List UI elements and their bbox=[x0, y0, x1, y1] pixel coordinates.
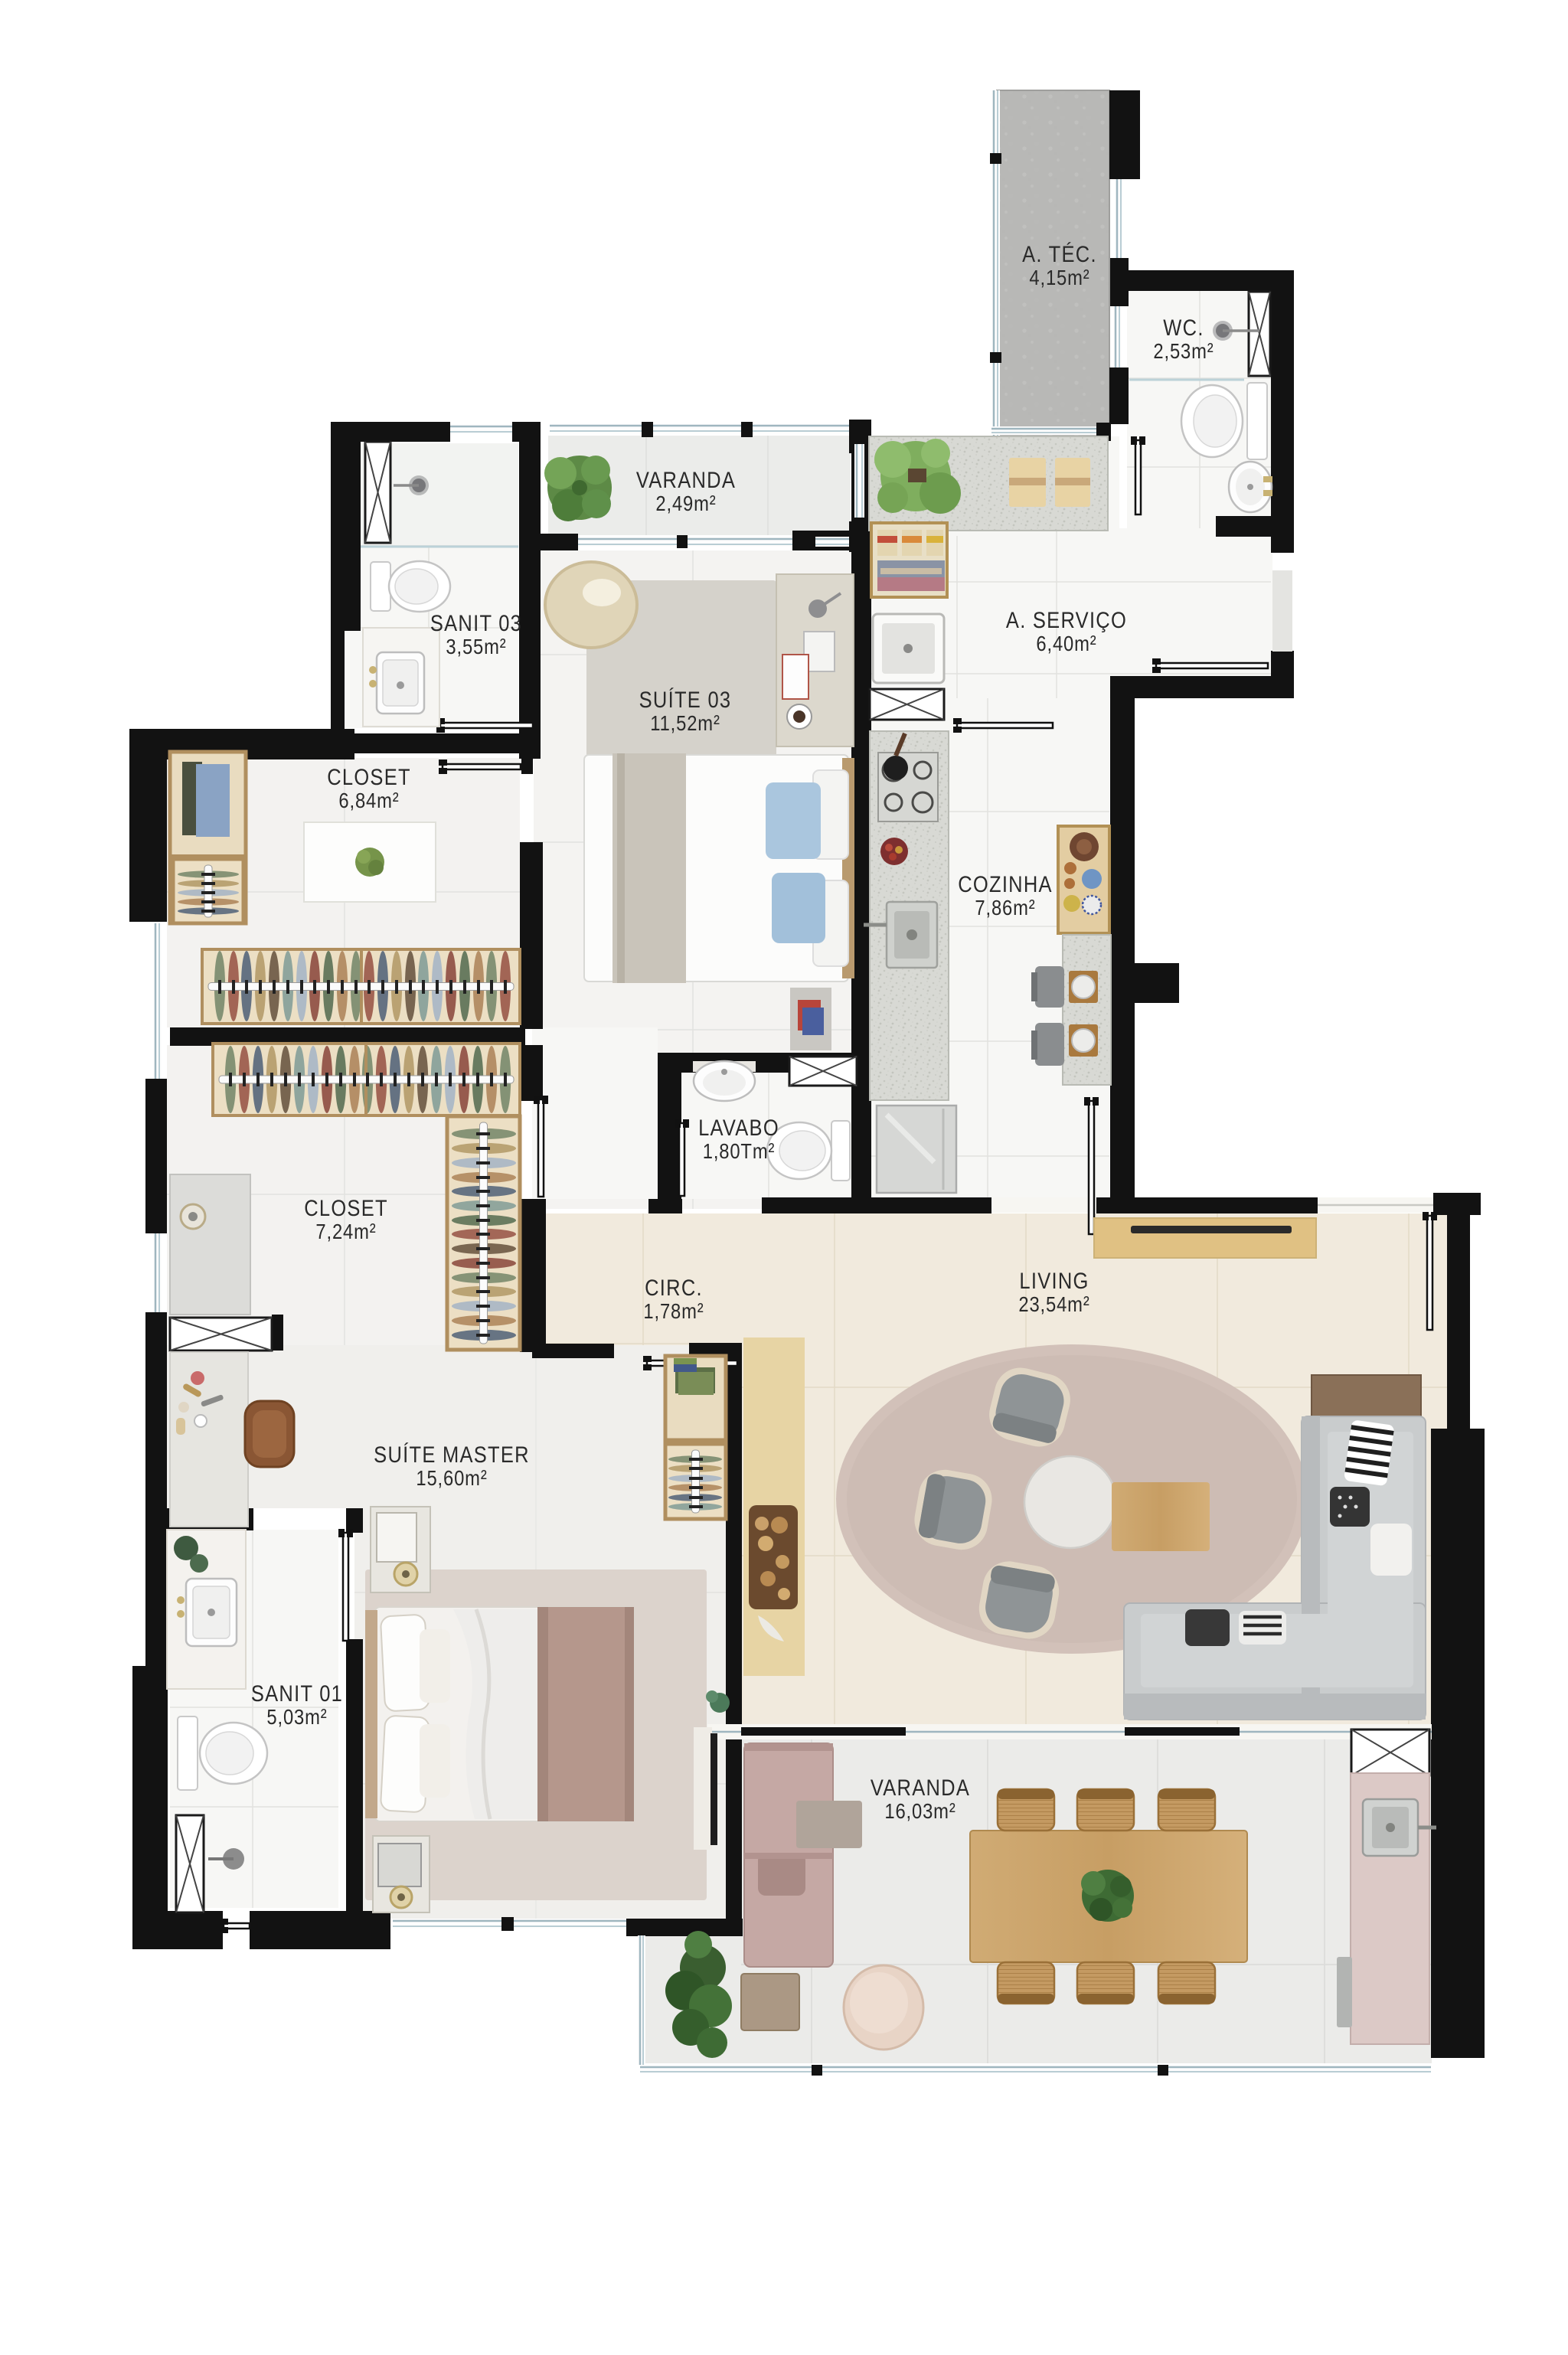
svg-text:SUÍTE MASTER: SUÍTE MASTER bbox=[374, 1442, 530, 1467]
svg-text:11,52m²: 11,52m² bbox=[650, 710, 720, 735]
svg-text:SANIT 03: SANIT 03 bbox=[430, 610, 522, 635]
svg-text:CLOSET: CLOSET bbox=[327, 764, 411, 789]
svg-text:3,55m²: 3,55m² bbox=[446, 634, 506, 658]
svg-text:15,60m²: 15,60m² bbox=[416, 1465, 487, 1490]
svg-text:23,54m²: 23,54m² bbox=[1018, 1292, 1089, 1316]
svg-text:CLOSET: CLOSET bbox=[304, 1195, 388, 1220]
svg-text:7,86m²: 7,86m² bbox=[975, 895, 1035, 919]
svg-text:LIVING: LIVING bbox=[1019, 1268, 1089, 1293]
svg-text:COZINHA: COZINHA bbox=[958, 871, 1053, 897]
svg-text:2,53m²: 2,53m² bbox=[1153, 338, 1214, 363]
svg-text:A. SERVIÇO: A. SERVIÇO bbox=[1006, 607, 1127, 632]
svg-text:7,24m²: 7,24m² bbox=[315, 1219, 376, 1243]
svg-text:A. TÉC.: A. TÉC. bbox=[1022, 241, 1097, 266]
svg-text:6,40m²: 6,40m² bbox=[1036, 631, 1096, 655]
svg-text:6,84m²: 6,84m² bbox=[338, 788, 399, 812]
svg-text:SANIT 01: SANIT 01 bbox=[251, 1681, 343, 1706]
svg-text:VARANDA: VARANDA bbox=[636, 467, 736, 492]
svg-text:CIRC.: CIRC. bbox=[645, 1275, 703, 1300]
svg-text:5,03m²: 5,03m² bbox=[266, 1704, 327, 1729]
svg-text:VARANDA: VARANDA bbox=[871, 1775, 970, 1800]
svg-text:SUÍTE 03: SUÍTE 03 bbox=[639, 687, 732, 712]
svg-text:2,49m²: 2,49m² bbox=[655, 491, 716, 515]
svg-text:1,78m²: 1,78m² bbox=[643, 1298, 704, 1323]
svg-text:1,80Tm²: 1,80Tm² bbox=[703, 1138, 776, 1163]
svg-text:WC.: WC. bbox=[1163, 315, 1204, 340]
svg-text:16,03m²: 16,03m² bbox=[884, 1798, 955, 1823]
svg-text:4,15m²: 4,15m² bbox=[1029, 265, 1089, 289]
svg-text:LAVABO: LAVABO bbox=[698, 1115, 779, 1140]
